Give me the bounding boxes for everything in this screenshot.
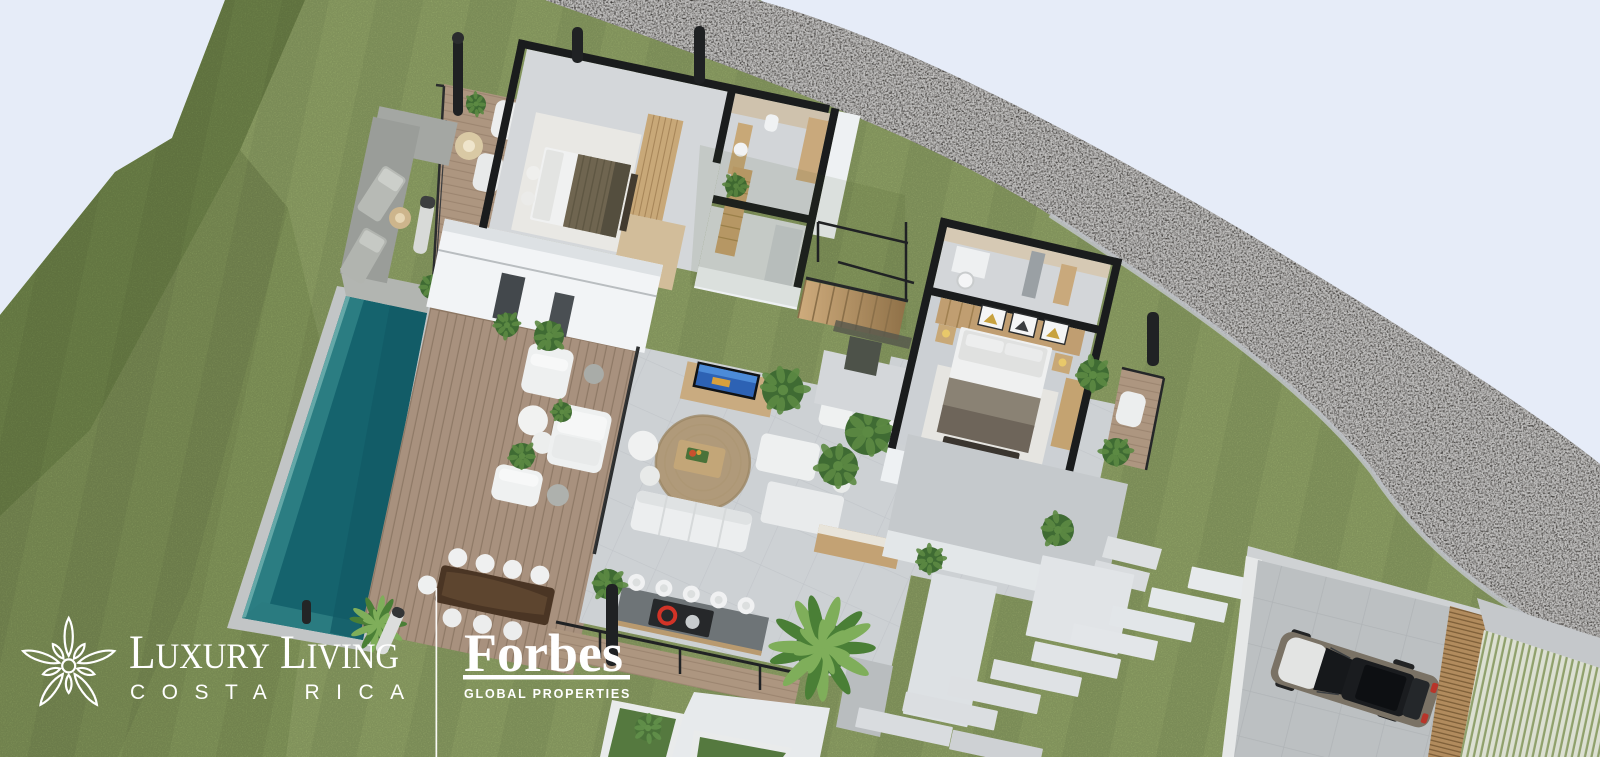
svg-text:COSTA RICA: COSTA RICA (130, 681, 421, 704)
svg-text:Forbes: Forbes (464, 623, 623, 683)
svg-text:GLOBAL PROPERTIES: GLOBAL PROPERTIES (464, 687, 631, 701)
